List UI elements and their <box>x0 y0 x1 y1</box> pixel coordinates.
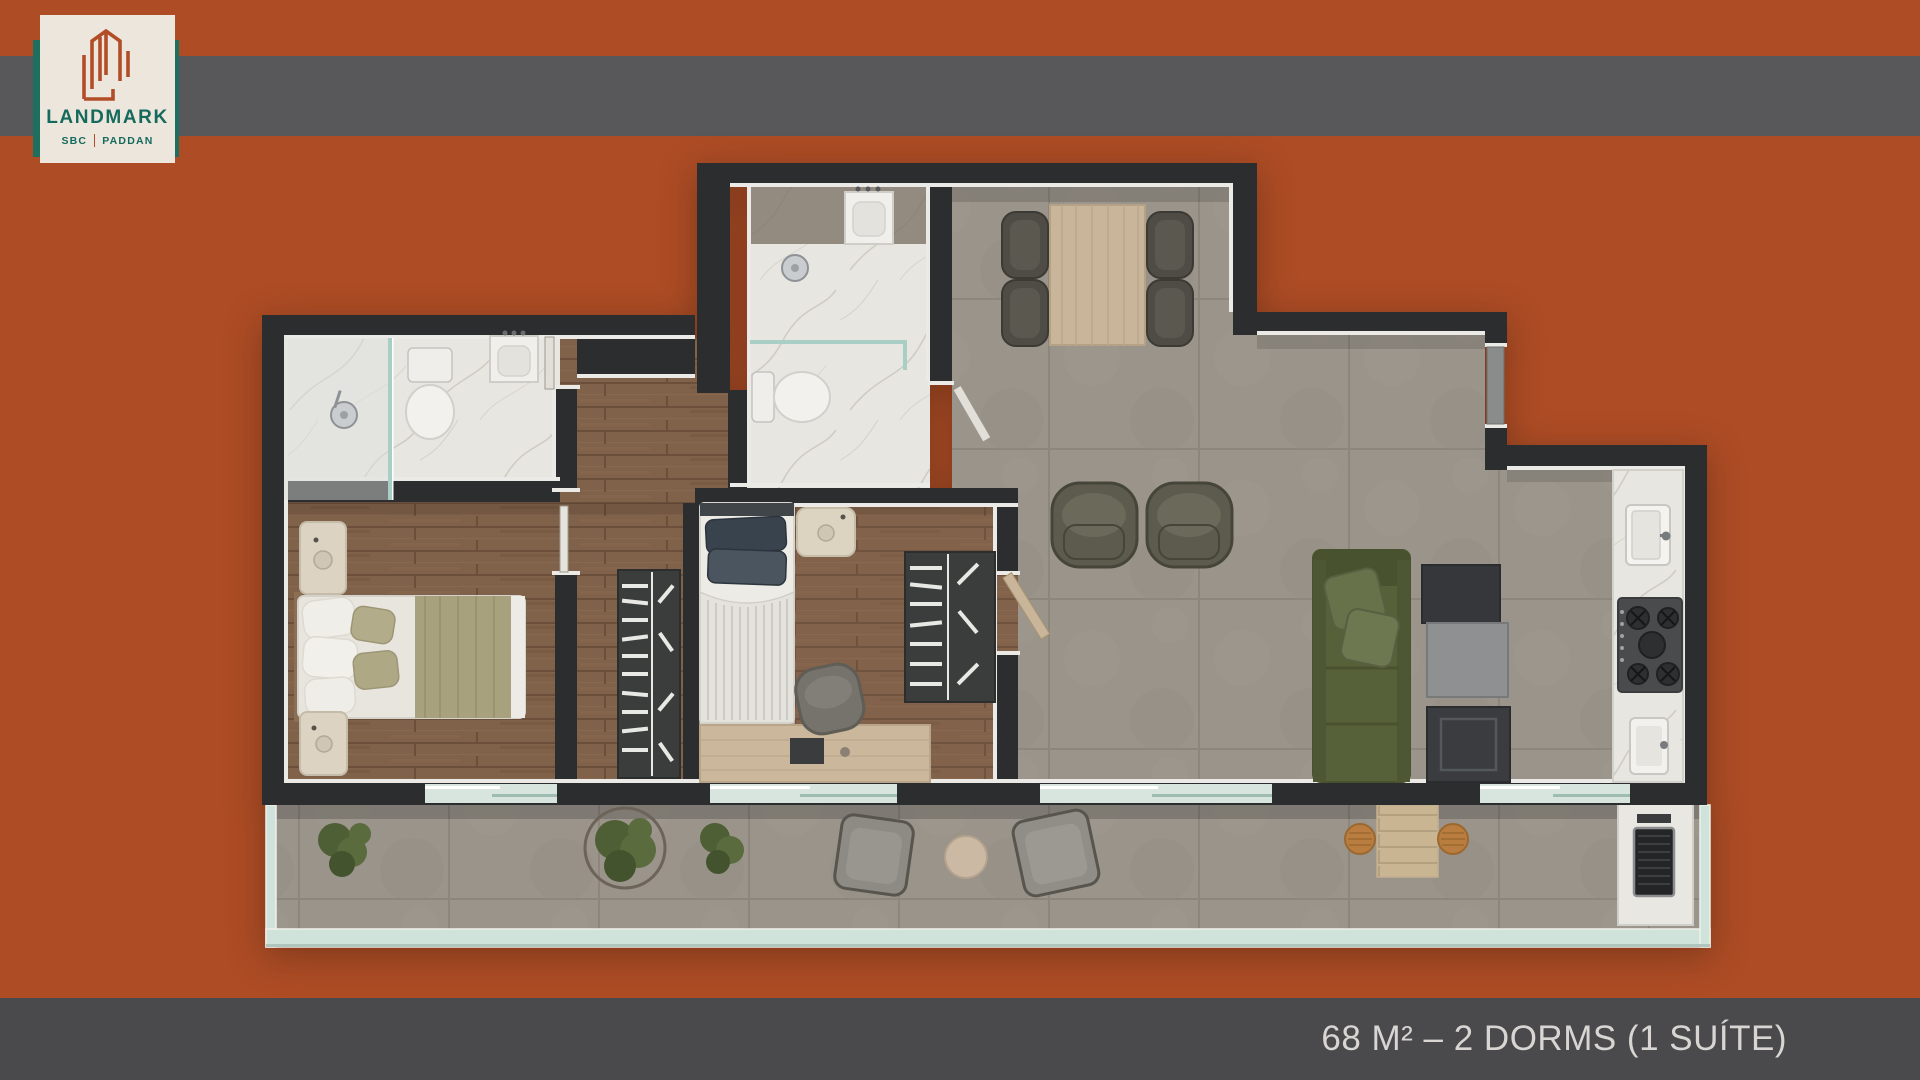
bistro-table <box>1377 805 1438 877</box>
balcony <box>266 803 1710 947</box>
floor-plan <box>0 0 1920 1080</box>
glass-partition-return <box>903 340 907 370</box>
glass-door <box>425 784 557 803</box>
bedroom-door-leaf <box>560 506 568 572</box>
shadow <box>284 503 695 515</box>
double-bed <box>294 592 525 722</box>
balcony-floor <box>272 805 1704 933</box>
stool <box>1345 824 1375 854</box>
single-bed <box>700 503 794 723</box>
armchair <box>1052 483 1137 567</box>
nightstand-with-lamp <box>797 508 855 556</box>
dining-area <box>1002 205 1193 346</box>
bathroom-door-leaf <box>545 337 554 389</box>
stool <box>1438 824 1468 854</box>
sofa <box>1313 550 1410 782</box>
vanity-sink <box>490 331 538 383</box>
wardrobe <box>905 552 995 702</box>
glass-partition <box>750 340 905 344</box>
shadow <box>1257 335 1485 349</box>
nightstand-with-lamp <box>300 712 347 775</box>
vanity-sink <box>845 187 893 245</box>
toilet <box>752 372 830 422</box>
tv-console <box>1422 565 1500 623</box>
kitchen-sink <box>1626 505 1671 565</box>
dining-table <box>1050 205 1145 345</box>
service-sink <box>1630 718 1668 774</box>
balcony-shadow <box>272 805 1704 819</box>
glass-door <box>710 784 897 803</box>
nightstand-with-lamp <box>300 522 346 594</box>
cooktop <box>1618 598 1682 692</box>
shadow <box>952 186 1235 202</box>
bbq-grill <box>1618 803 1693 925</box>
shower-head <box>782 255 808 281</box>
desk-object <box>790 738 824 764</box>
round-pouf <box>945 836 987 878</box>
entry-door <box>1487 347 1504 424</box>
pillow <box>707 549 786 586</box>
lounge-chair <box>833 813 915 896</box>
glass-door <box>1480 784 1630 803</box>
kitchen <box>1613 470 1683 782</box>
sofa-pillow <box>1339 607 1401 669</box>
corridor-floor-2 <box>577 378 695 503</box>
corridor-wardrobe <box>618 570 680 778</box>
cabinet <box>1427 707 1510 782</box>
armchair <box>1147 483 1232 567</box>
duvet <box>415 596 513 718</box>
glass-partition <box>388 338 392 500</box>
sideboard <box>1427 623 1508 697</box>
desk-accessory <box>840 747 850 757</box>
lounge-chair <box>1011 808 1101 898</box>
slide: 68 M² – 2 DORMS (1 SUÍTE) LANDMARK SBC P… <box>0 0 1920 1080</box>
toilet <box>406 348 454 439</box>
bathroom-2-counter-zone <box>747 186 930 244</box>
glass-door <box>1040 784 1272 803</box>
glass-edge <box>392 338 394 500</box>
